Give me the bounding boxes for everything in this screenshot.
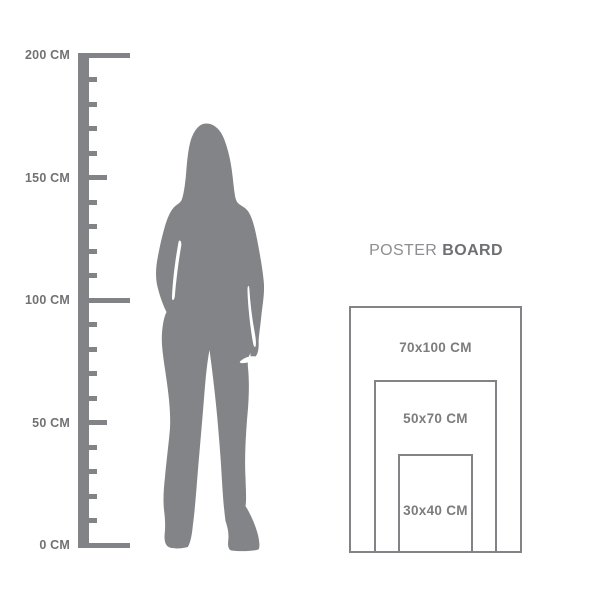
poster-board-sizes: 70x100 CM50x70 CM30x40 CM bbox=[0, 0, 600, 600]
poster-size-label-50x70: 50x70 CM bbox=[376, 412, 496, 426]
poster-size-label-70x100: 70x100 CM bbox=[376, 341, 496, 355]
poster-size-label-30x40: 30x40 CM bbox=[376, 504, 496, 518]
size-guide-diagram: 200 CM150 CM100 CM50 CM0 CM POSTERBOARD … bbox=[0, 0, 600, 600]
